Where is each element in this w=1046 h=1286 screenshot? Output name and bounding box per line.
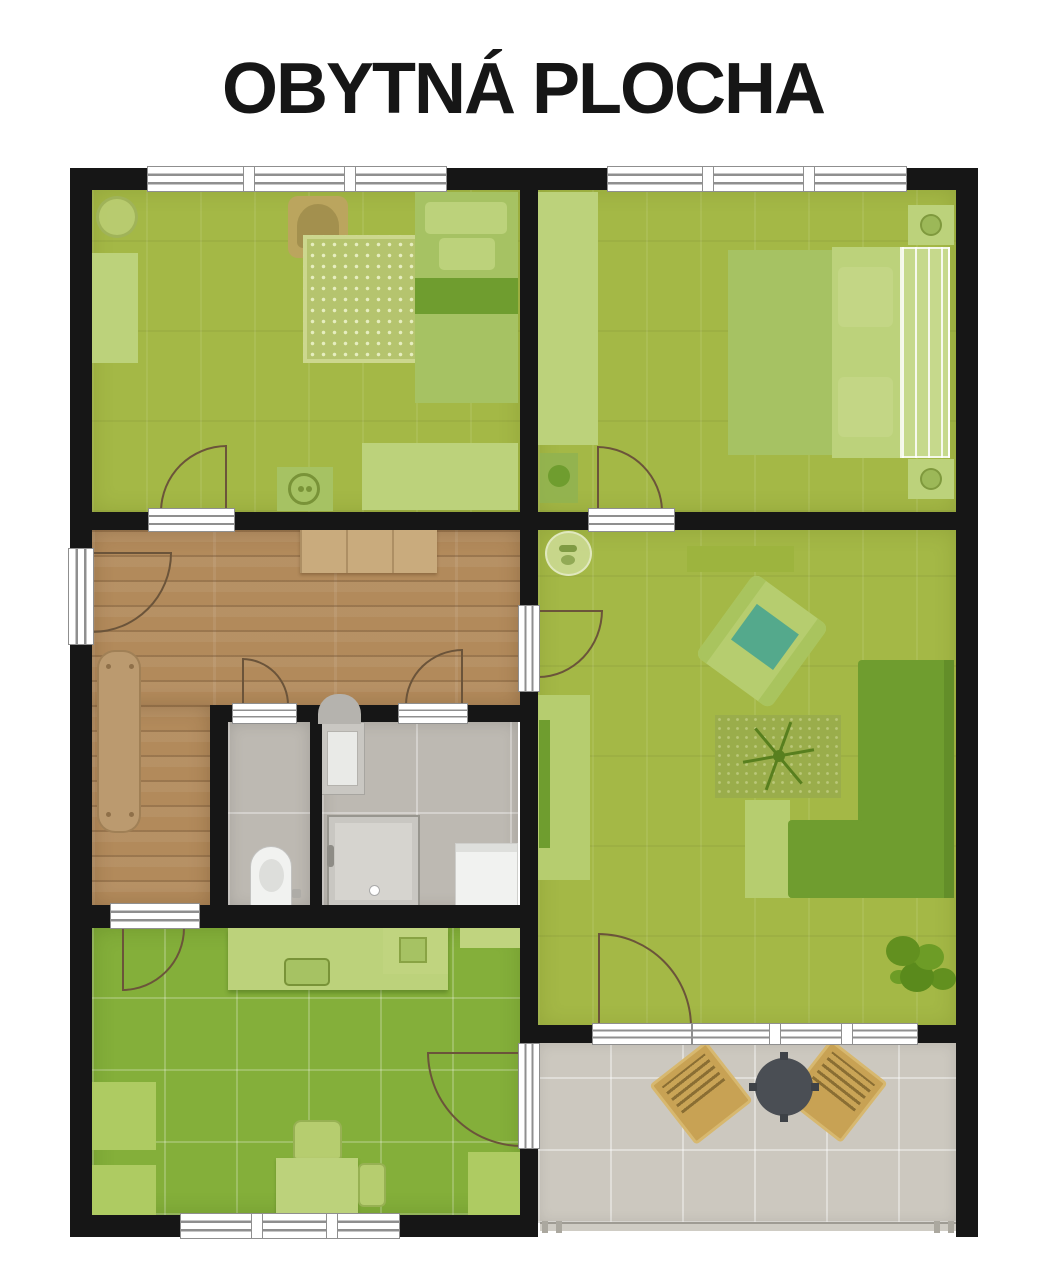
shower-fixture [327, 845, 334, 867]
pillow-icon [425, 202, 507, 234]
sofa-chaise [788, 820, 864, 898]
wall [310, 722, 322, 908]
door-leaf [598, 933, 600, 1027]
terrace-door-frame [592, 1023, 692, 1045]
stool-dot [306, 486, 312, 492]
bed-body [415, 314, 518, 403]
door-leaf [225, 445, 227, 512]
railing-post [542, 1221, 548, 1233]
window-kitchen [180, 1213, 400, 1239]
sofa-icon [858, 660, 954, 898]
toilet-bowl [259, 859, 284, 892]
bench-dot [129, 812, 134, 817]
bench-icon [97, 650, 141, 833]
basin-inner [327, 731, 358, 786]
railing-post [556, 1221, 562, 1233]
bench-dot [129, 664, 134, 669]
corner-plant-icon [878, 928, 964, 996]
railing-post [934, 1221, 940, 1233]
table-leg [780, 1052, 788, 1060]
bench-dot [106, 812, 111, 817]
door-leaf [538, 610, 603, 612]
lamp-icon [920, 214, 942, 236]
door-leaf [122, 928, 124, 991]
window-bedroom-1 [147, 166, 447, 192]
desk-icon [362, 443, 518, 510]
pillow-icon [439, 238, 495, 270]
rug-icon [303, 235, 421, 363]
bench-dot [106, 664, 111, 669]
pouf-icon [96, 196, 138, 238]
kitchen-corner-cabinet [460, 928, 520, 948]
terrace-floor [538, 1043, 956, 1223]
table-leg [811, 1083, 819, 1091]
sofa-backrest [944, 660, 954, 898]
door-leaf [597, 446, 599, 512]
door-leaf [461, 649, 463, 705]
window-mullion [326, 1213, 338, 1239]
plant-center [773, 750, 785, 762]
ottoman-icon [745, 800, 790, 898]
door-frame-kitchen [110, 903, 200, 929]
kitchen-table-icon [276, 1158, 358, 1213]
washbasin-back [318, 694, 361, 724]
chair-icon [358, 1163, 386, 1207]
single-bed-icon [415, 192, 518, 403]
pillow-icon [838, 267, 893, 327]
terrace-table-icon [755, 1058, 813, 1116]
wardrobe-icon [90, 253, 138, 363]
terrace-railing [540, 1222, 956, 1231]
plant-mat-icon [540, 453, 578, 503]
door-leaf [427, 1052, 522, 1054]
stove-burner [399, 937, 427, 963]
kitchen-cabinet-icon [92, 1165, 156, 1217]
wall [70, 168, 92, 1237]
washer-panel [456, 844, 517, 852]
table-leg [780, 1114, 788, 1122]
kitchen-cabinet-icon [468, 1152, 520, 1218]
lamp-icon [920, 468, 942, 490]
wardrobe-icon [538, 192, 598, 445]
hall-cabinet-icon [300, 528, 437, 573]
floor-plan-page: OBYTNÁ PLOCHA [0, 0, 1046, 1286]
window-mullion [702, 166, 714, 192]
double-bed-icon [728, 247, 950, 458]
stove-icon [383, 928, 448, 974]
kitchen-counter-icon [228, 928, 448, 990]
tv-icon [539, 720, 550, 848]
plant-leaves [886, 936, 920, 966]
door-frame-wc [232, 703, 297, 724]
railing-post [948, 1221, 954, 1233]
flush-button-icon [292, 889, 301, 898]
window-mullion [841, 1023, 853, 1045]
tv-stand-icon [538, 695, 590, 880]
washing-machine-icon [455, 843, 518, 908]
nightstand-icon [908, 205, 954, 245]
door-leaf [242, 658, 244, 705]
window-mullion [243, 166, 255, 192]
nightstand-icon [908, 459, 954, 499]
hanging-plant-icon [545, 531, 592, 576]
window-bedroom-2 [607, 166, 907, 192]
headboard-icon [900, 247, 950, 458]
window-living-room [692, 1023, 918, 1045]
wall [210, 705, 228, 928]
table-leg [749, 1083, 757, 1091]
toilet-icon [250, 846, 292, 910]
kitchen-cabinet-icon [92, 1082, 156, 1150]
window-mullion [251, 1213, 263, 1239]
door-frame-living-room [518, 605, 540, 692]
door-frame-bedroom-1 [148, 508, 235, 532]
window-mullion [803, 166, 815, 192]
sideboard-icon [687, 546, 794, 572]
page-title: OBYTNÁ PLOCHA [0, 48, 1046, 130]
floor-plant-icon [743, 720, 815, 792]
stool-ring [288, 473, 320, 505]
window-mullion [769, 1023, 781, 1045]
sink-icon [284, 958, 330, 986]
wall [956, 168, 978, 1237]
plant-icon [548, 465, 570, 487]
shower-icon [327, 815, 420, 908]
bed-blanket-stripe [415, 278, 518, 314]
stool-dot [298, 486, 304, 492]
plant-leaf [561, 555, 575, 565]
door-frame-kitchen-terrace [518, 1043, 540, 1149]
entrance-door-frame [68, 548, 94, 645]
shower-drain [369, 885, 380, 896]
stool-icon [277, 467, 333, 511]
window-mullion [344, 166, 356, 192]
door-frame-bathroom [398, 703, 468, 724]
door-leaf [92, 552, 172, 554]
chair-icon [293, 1120, 342, 1160]
washbasin-icon [320, 722, 365, 795]
door-frame-bedroom-2 [588, 508, 675, 532]
pillow-icon [838, 377, 893, 437]
plant-leaf [559, 545, 577, 552]
